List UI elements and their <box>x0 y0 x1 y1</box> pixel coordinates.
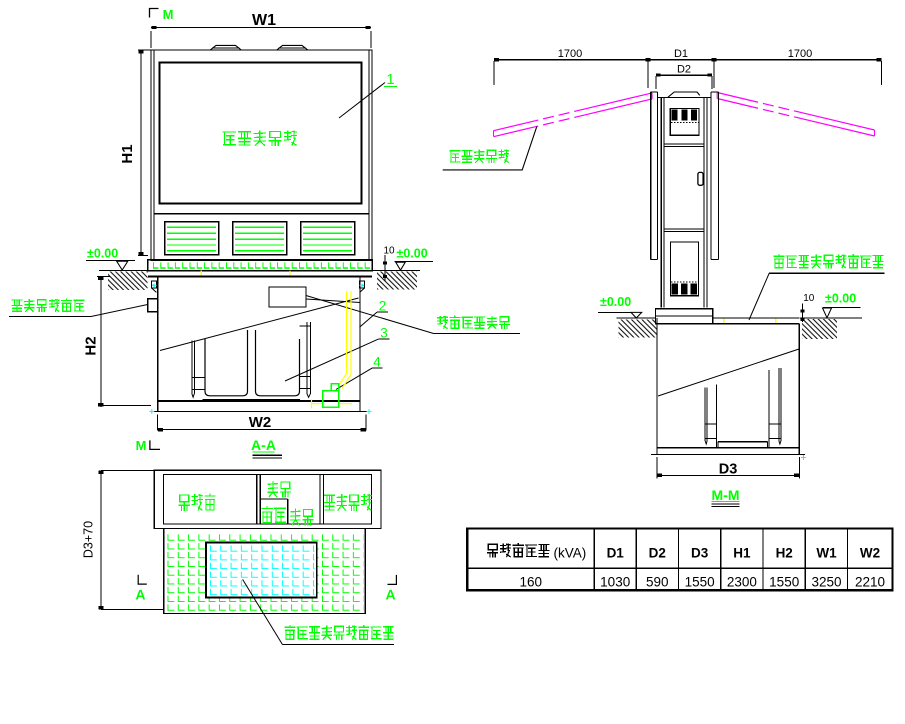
svg-text:A: A <box>386 587 396 603</box>
svg-text:D1: D1 <box>607 546 625 561</box>
svg-text:160: 160 <box>520 575 543 590</box>
svg-text:A: A <box>135 587 145 603</box>
svg-text:590: 590 <box>646 575 669 590</box>
svg-text:(kVA): (kVA) <box>554 546 587 561</box>
svg-text:±0.00: ±0.00 <box>825 292 856 306</box>
svg-text:A-A: A-A <box>251 437 276 453</box>
svg-text:1700: 1700 <box>558 48 582 60</box>
svg-text:2300: 2300 <box>727 575 757 590</box>
svg-text:W1: W1 <box>816 546 837 561</box>
svg-text:±0.00: ±0.00 <box>600 295 631 309</box>
svg-text:M: M <box>136 438 147 453</box>
svg-text:W2: W2 <box>860 546 880 561</box>
svg-text:D1: D1 <box>674 48 688 60</box>
svg-text:±0.00: ±0.00 <box>87 247 118 261</box>
svg-text:H2: H2 <box>776 546 793 561</box>
svg-text:3250: 3250 <box>811 575 841 590</box>
svg-text:M-M: M-M <box>712 487 740 503</box>
svg-text:10: 10 <box>803 293 815 304</box>
svg-text:1030: 1030 <box>600 575 630 590</box>
svg-text:10: 10 <box>383 246 395 257</box>
svg-text:H2: H2 <box>83 336 100 355</box>
svg-text:M: M <box>163 7 174 22</box>
svg-text:D3: D3 <box>691 546 709 561</box>
svg-text:1: 1 <box>386 71 394 88</box>
svg-text:D3+70: D3+70 <box>82 521 96 558</box>
svg-text:D2: D2 <box>677 64 691 76</box>
svg-text:D2: D2 <box>649 546 666 561</box>
svg-text:1550: 1550 <box>769 575 799 590</box>
svg-text:D3: D3 <box>719 462 738 478</box>
svg-text:±0.00: ±0.00 <box>397 247 428 261</box>
svg-text:2210: 2210 <box>855 575 885 590</box>
svg-text:W1: W1 <box>252 12 276 29</box>
svg-text:4: 4 <box>373 354 381 369</box>
svg-text:1550: 1550 <box>685 575 715 590</box>
svg-text:3: 3 <box>380 326 388 341</box>
svg-text:1700: 1700 <box>788 48 812 60</box>
svg-text:2: 2 <box>379 299 387 314</box>
svg-text:H1: H1 <box>119 144 136 163</box>
svg-text:W2: W2 <box>249 414 272 431</box>
svg-text:H1: H1 <box>733 546 751 561</box>
